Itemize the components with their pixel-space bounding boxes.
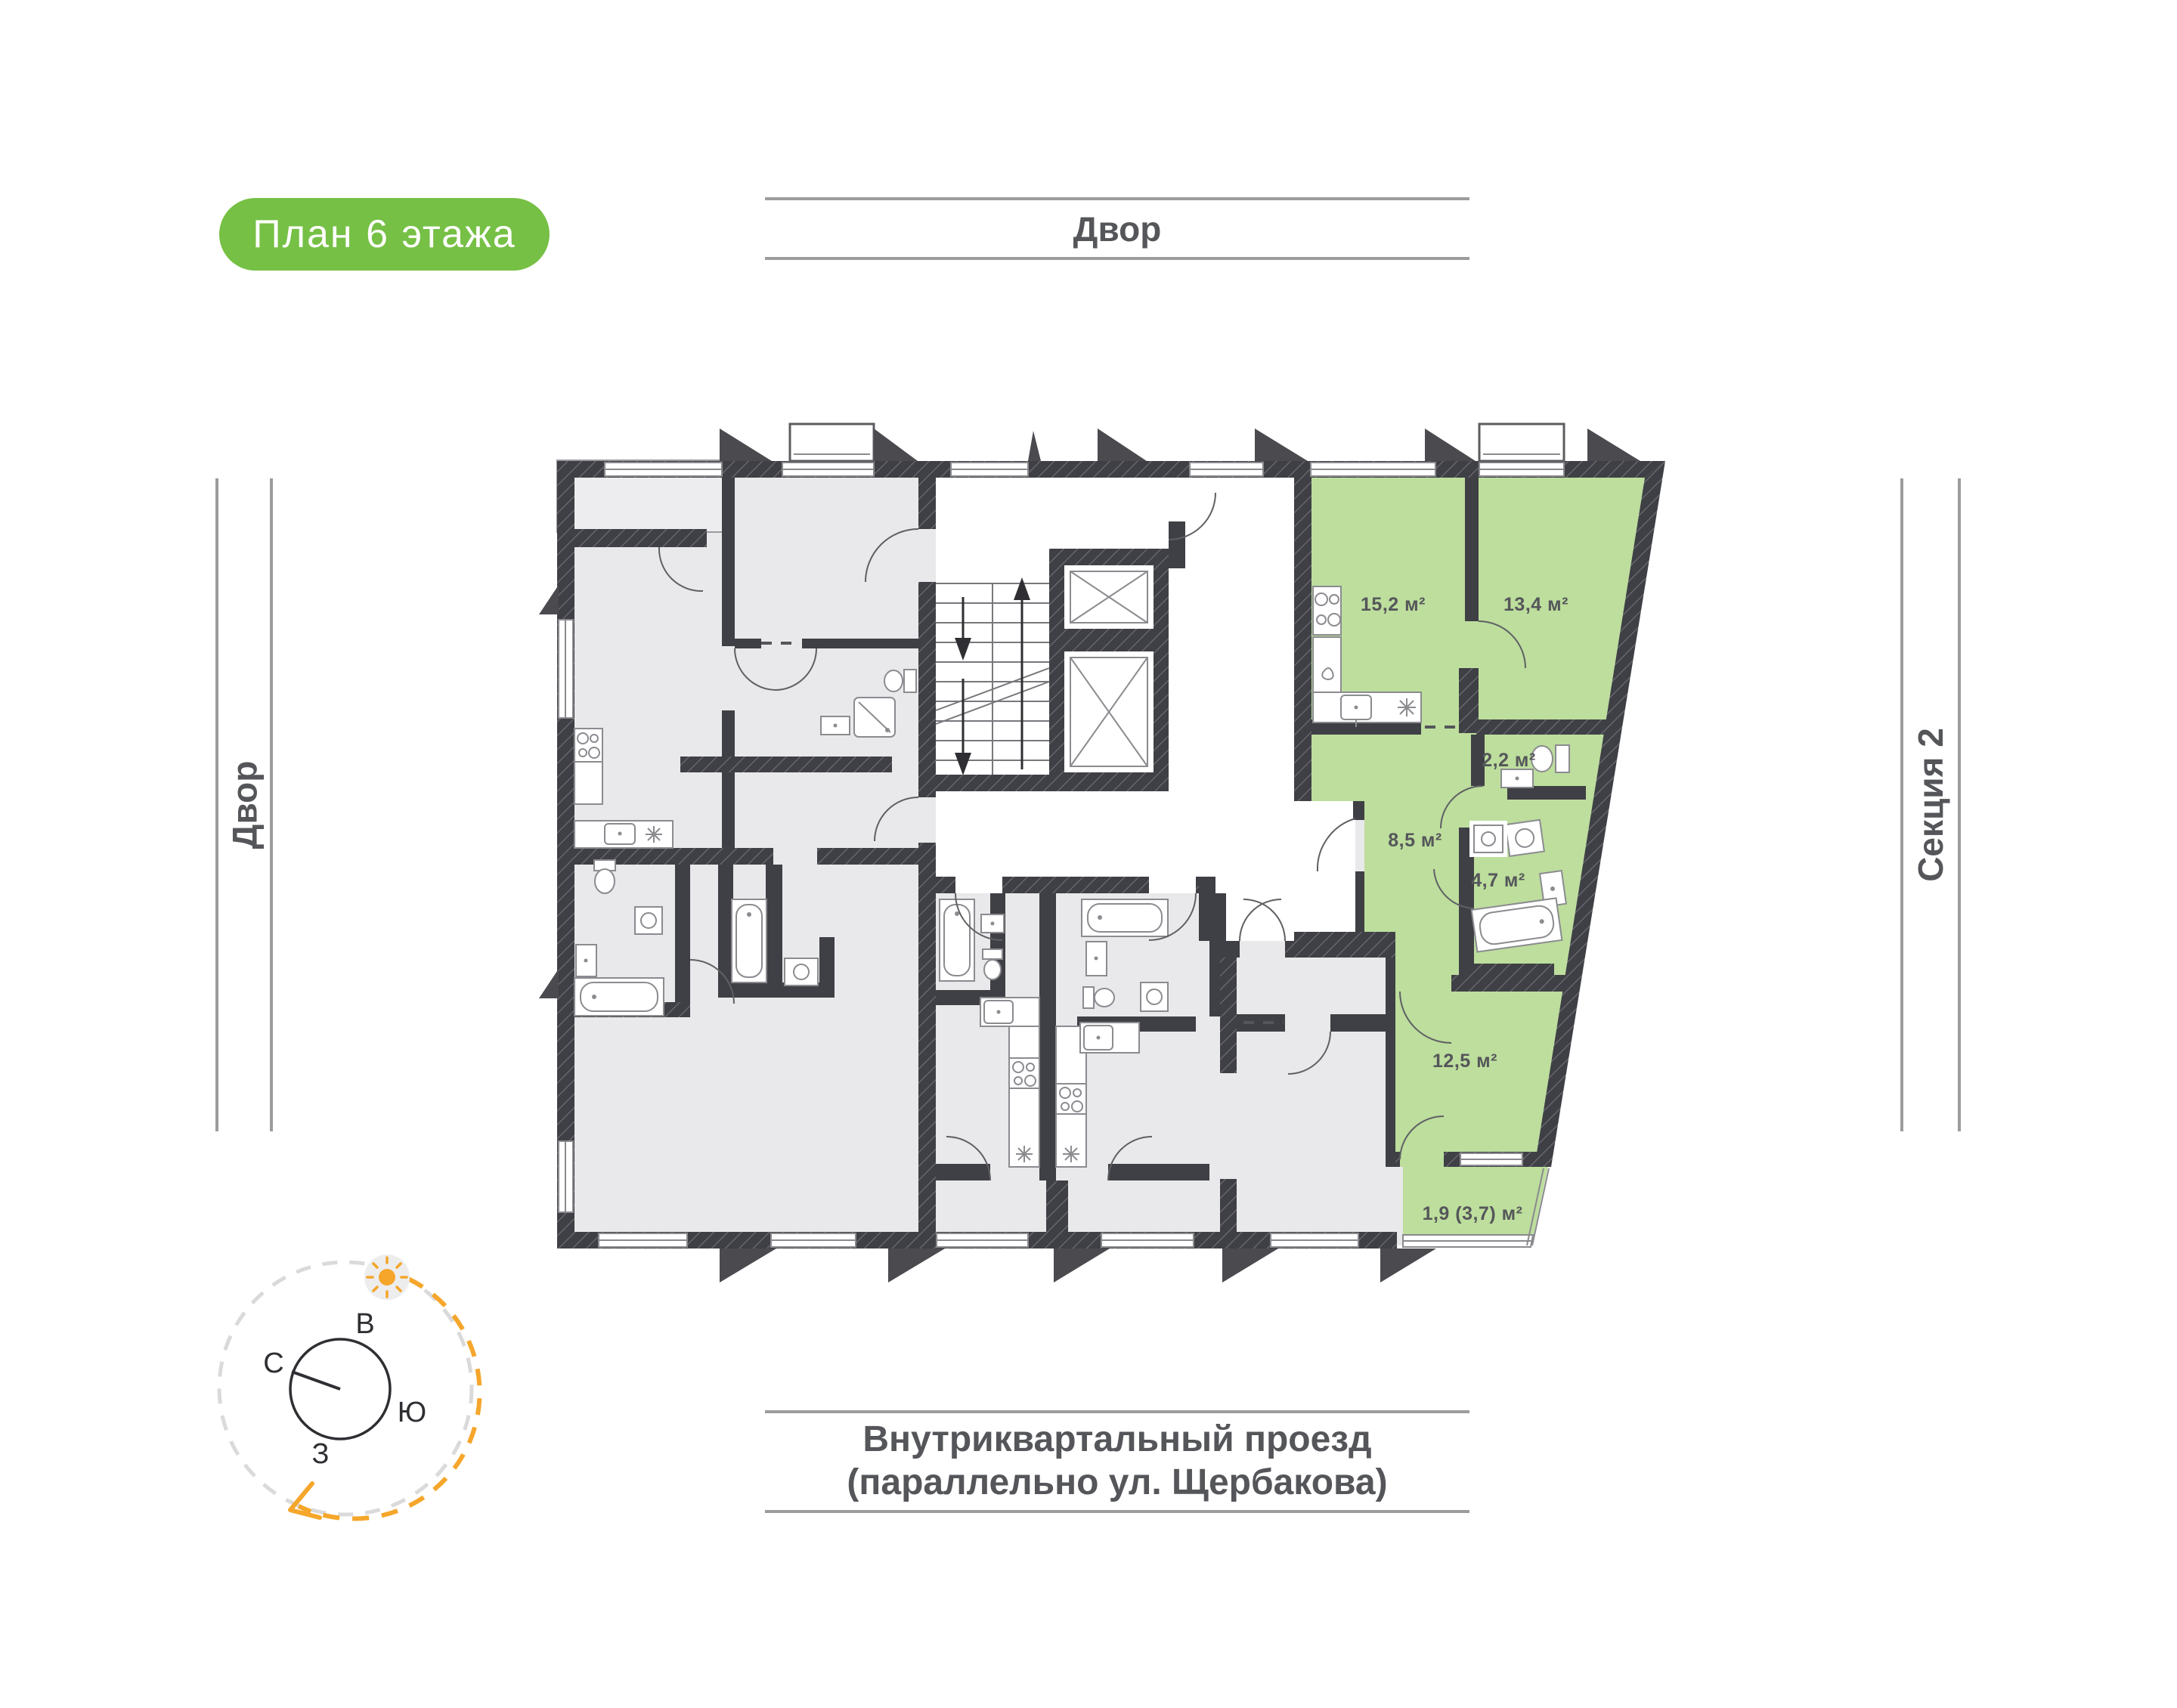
stove-icon [574,729,602,762]
sink-icon [981,914,1004,933]
refrigerator-icon [646,826,662,843]
toilet-icon [594,860,615,893]
bathtub-icon [574,978,664,1016]
room-area-label: 2,2 м² [1482,750,1536,771]
sun-icon [364,1255,410,1300]
balcony-top-2 [1479,424,1564,461]
washing-machine-icon [785,958,818,986]
sink-icon [1080,1023,1139,1053]
street-label-line1: Внутриквартальный проезд [862,1419,1371,1462]
yard-label-top: Двор [765,197,1469,260]
section-label: Секция 2 [1900,478,1961,1131]
toilet-icon [983,949,1002,979]
room-area-label: 13,4 м² [1503,594,1568,615]
street-label-line2: (параллельно ул. Щербакова) [847,1462,1387,1505]
room-area-label: 15,2 м² [1361,594,1426,615]
utility-niche [1469,821,1507,857]
bathtub-icon [732,899,766,982]
washing-machine-icon [635,907,662,934]
kitchen-counter [574,762,602,804]
yard-left-text: Двор [224,761,265,849]
floor-plan-page: План 6 этажа Двор Двор Секция 2 Внутрикв… [0,0,2177,1708]
street-label: Внутриквартальный проезд (параллельно ул… [765,1410,1469,1513]
room-area-label: 1,9 (3,7) м² [1423,1203,1523,1224]
shower-icon [854,698,895,737]
yard-label-left: Двор [215,478,273,1131]
compass-north-label: С [263,1348,283,1379]
room-area-label: 12,5 м² [1432,1050,1497,1072]
corridor-pocket [1215,877,1355,941]
sink-icon [980,998,1039,1026]
sink-icon [821,716,850,735]
room-area-label: 8,5 м² [1388,830,1442,851]
toilet-icon [1083,987,1114,1008]
stove-icon [1056,1084,1086,1114]
balcony-top-1 [790,424,874,461]
section-label-text: Секция 2 [1910,728,1951,882]
bathtub-icon [940,899,974,981]
sink-icon [1501,769,1533,787]
floor-badge-label: План 6 этажа [252,212,516,257]
washing-machine-icon [1141,982,1168,1011]
elevator-icon [1064,565,1154,629]
refrigerator-icon [1016,1146,1033,1162]
stove-icon [1009,1058,1039,1088]
refrigerator-icon [1398,698,1416,716]
room-area-label: 4,7 м² [1471,870,1525,891]
compass-south-label: Ю [398,1397,426,1428]
bathtub-icon [1082,899,1168,936]
elevator-icon [1064,651,1154,772]
sink-icon [1086,942,1107,976]
compass-icon: С В Ю З [181,1224,529,1557]
yard-top-text: Двор [1073,209,1162,249]
compass-east-label: В [355,1308,374,1340]
floor-badge[interactable]: План 6 этажа [219,198,550,271]
floor-plan: 15,2 м² 13,4 м² 2,2 м² 8,5 м² 4,7 м² 12,… [529,408,1678,1285]
compass-west-label: З [312,1438,330,1470]
sink-icon [576,945,596,976]
kitchen-counter [1313,637,1341,692]
toilet-icon [884,670,916,692]
refrigerator-icon [1063,1146,1079,1162]
washing-machine-icon [1505,820,1544,856]
stove-icon [1313,586,1341,635]
